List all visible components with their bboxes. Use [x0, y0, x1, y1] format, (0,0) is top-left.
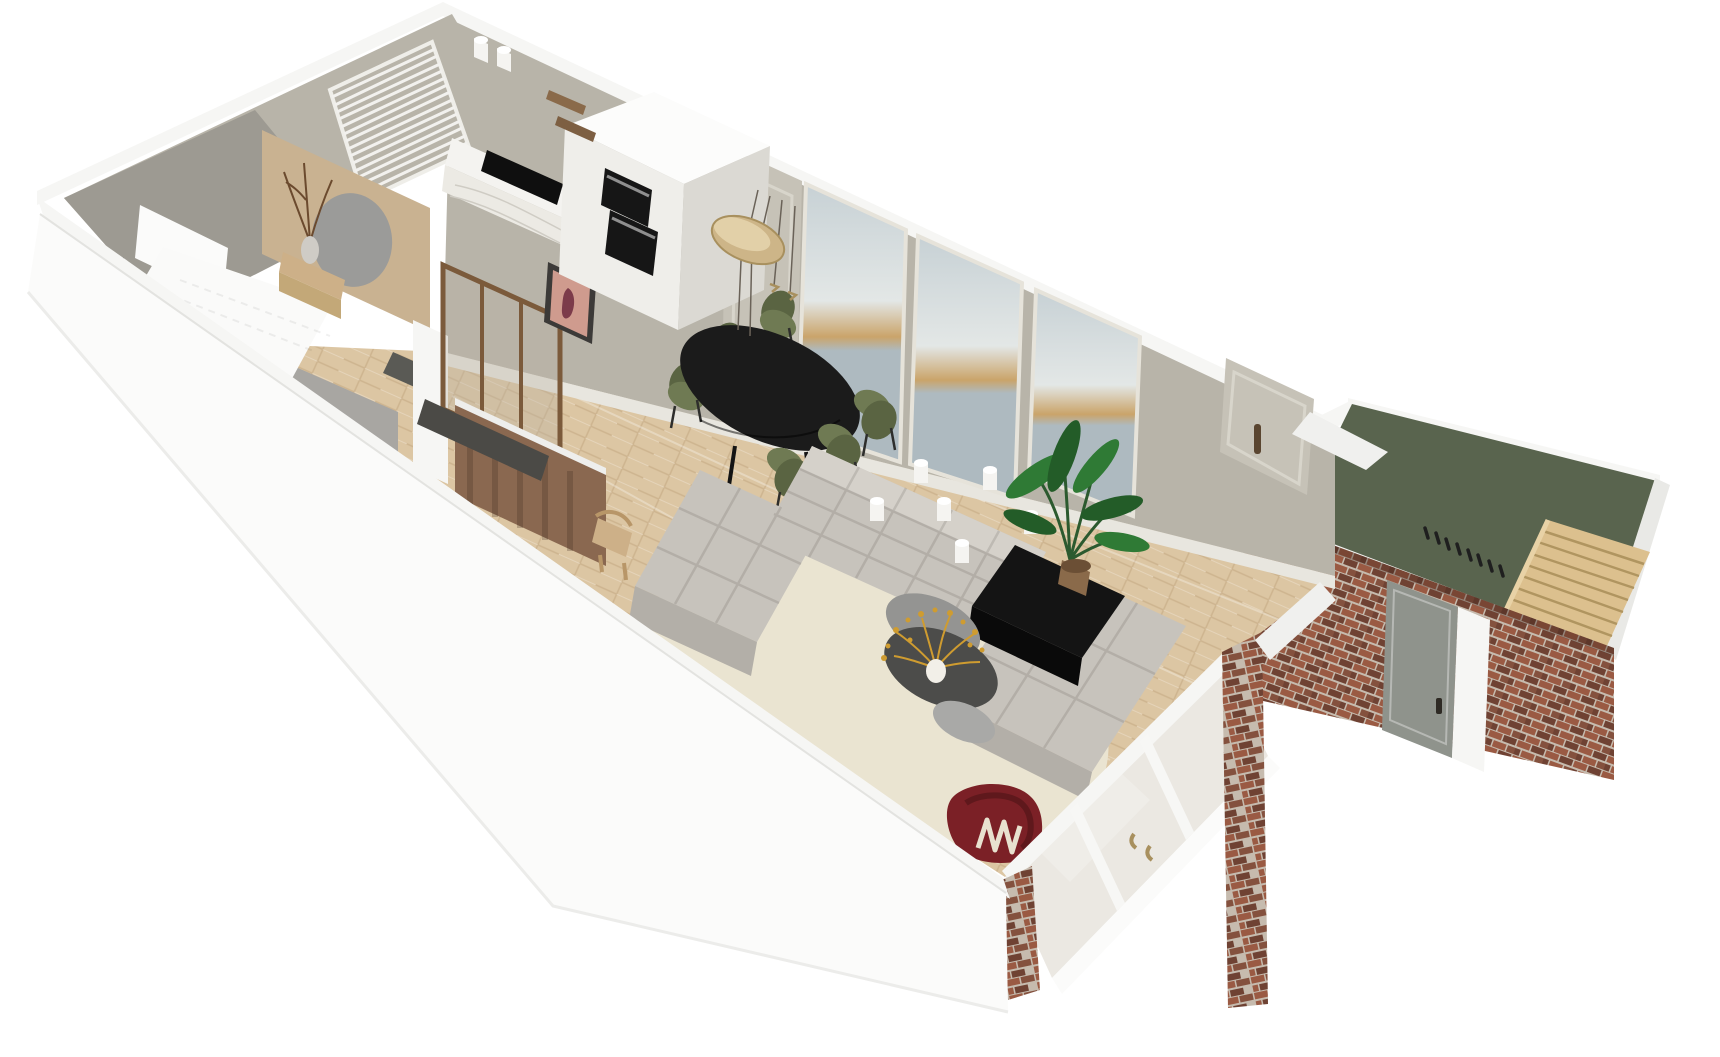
annex-door-frame — [1452, 607, 1490, 772]
marble-vase — [301, 236, 319, 264]
window-2[interactable] — [910, 236, 1022, 498]
render-canvas — [0, 0, 1720, 1057]
door-handle[interactable] — [1254, 424, 1261, 454]
brick-corner-column — [1222, 632, 1268, 1008]
annex-door-handle[interactable] — [1436, 698, 1442, 714]
pot-soil — [1061, 559, 1091, 573]
flower-vase — [926, 659, 946, 683]
floorplan-3d-render — [0, 0, 1720, 1057]
